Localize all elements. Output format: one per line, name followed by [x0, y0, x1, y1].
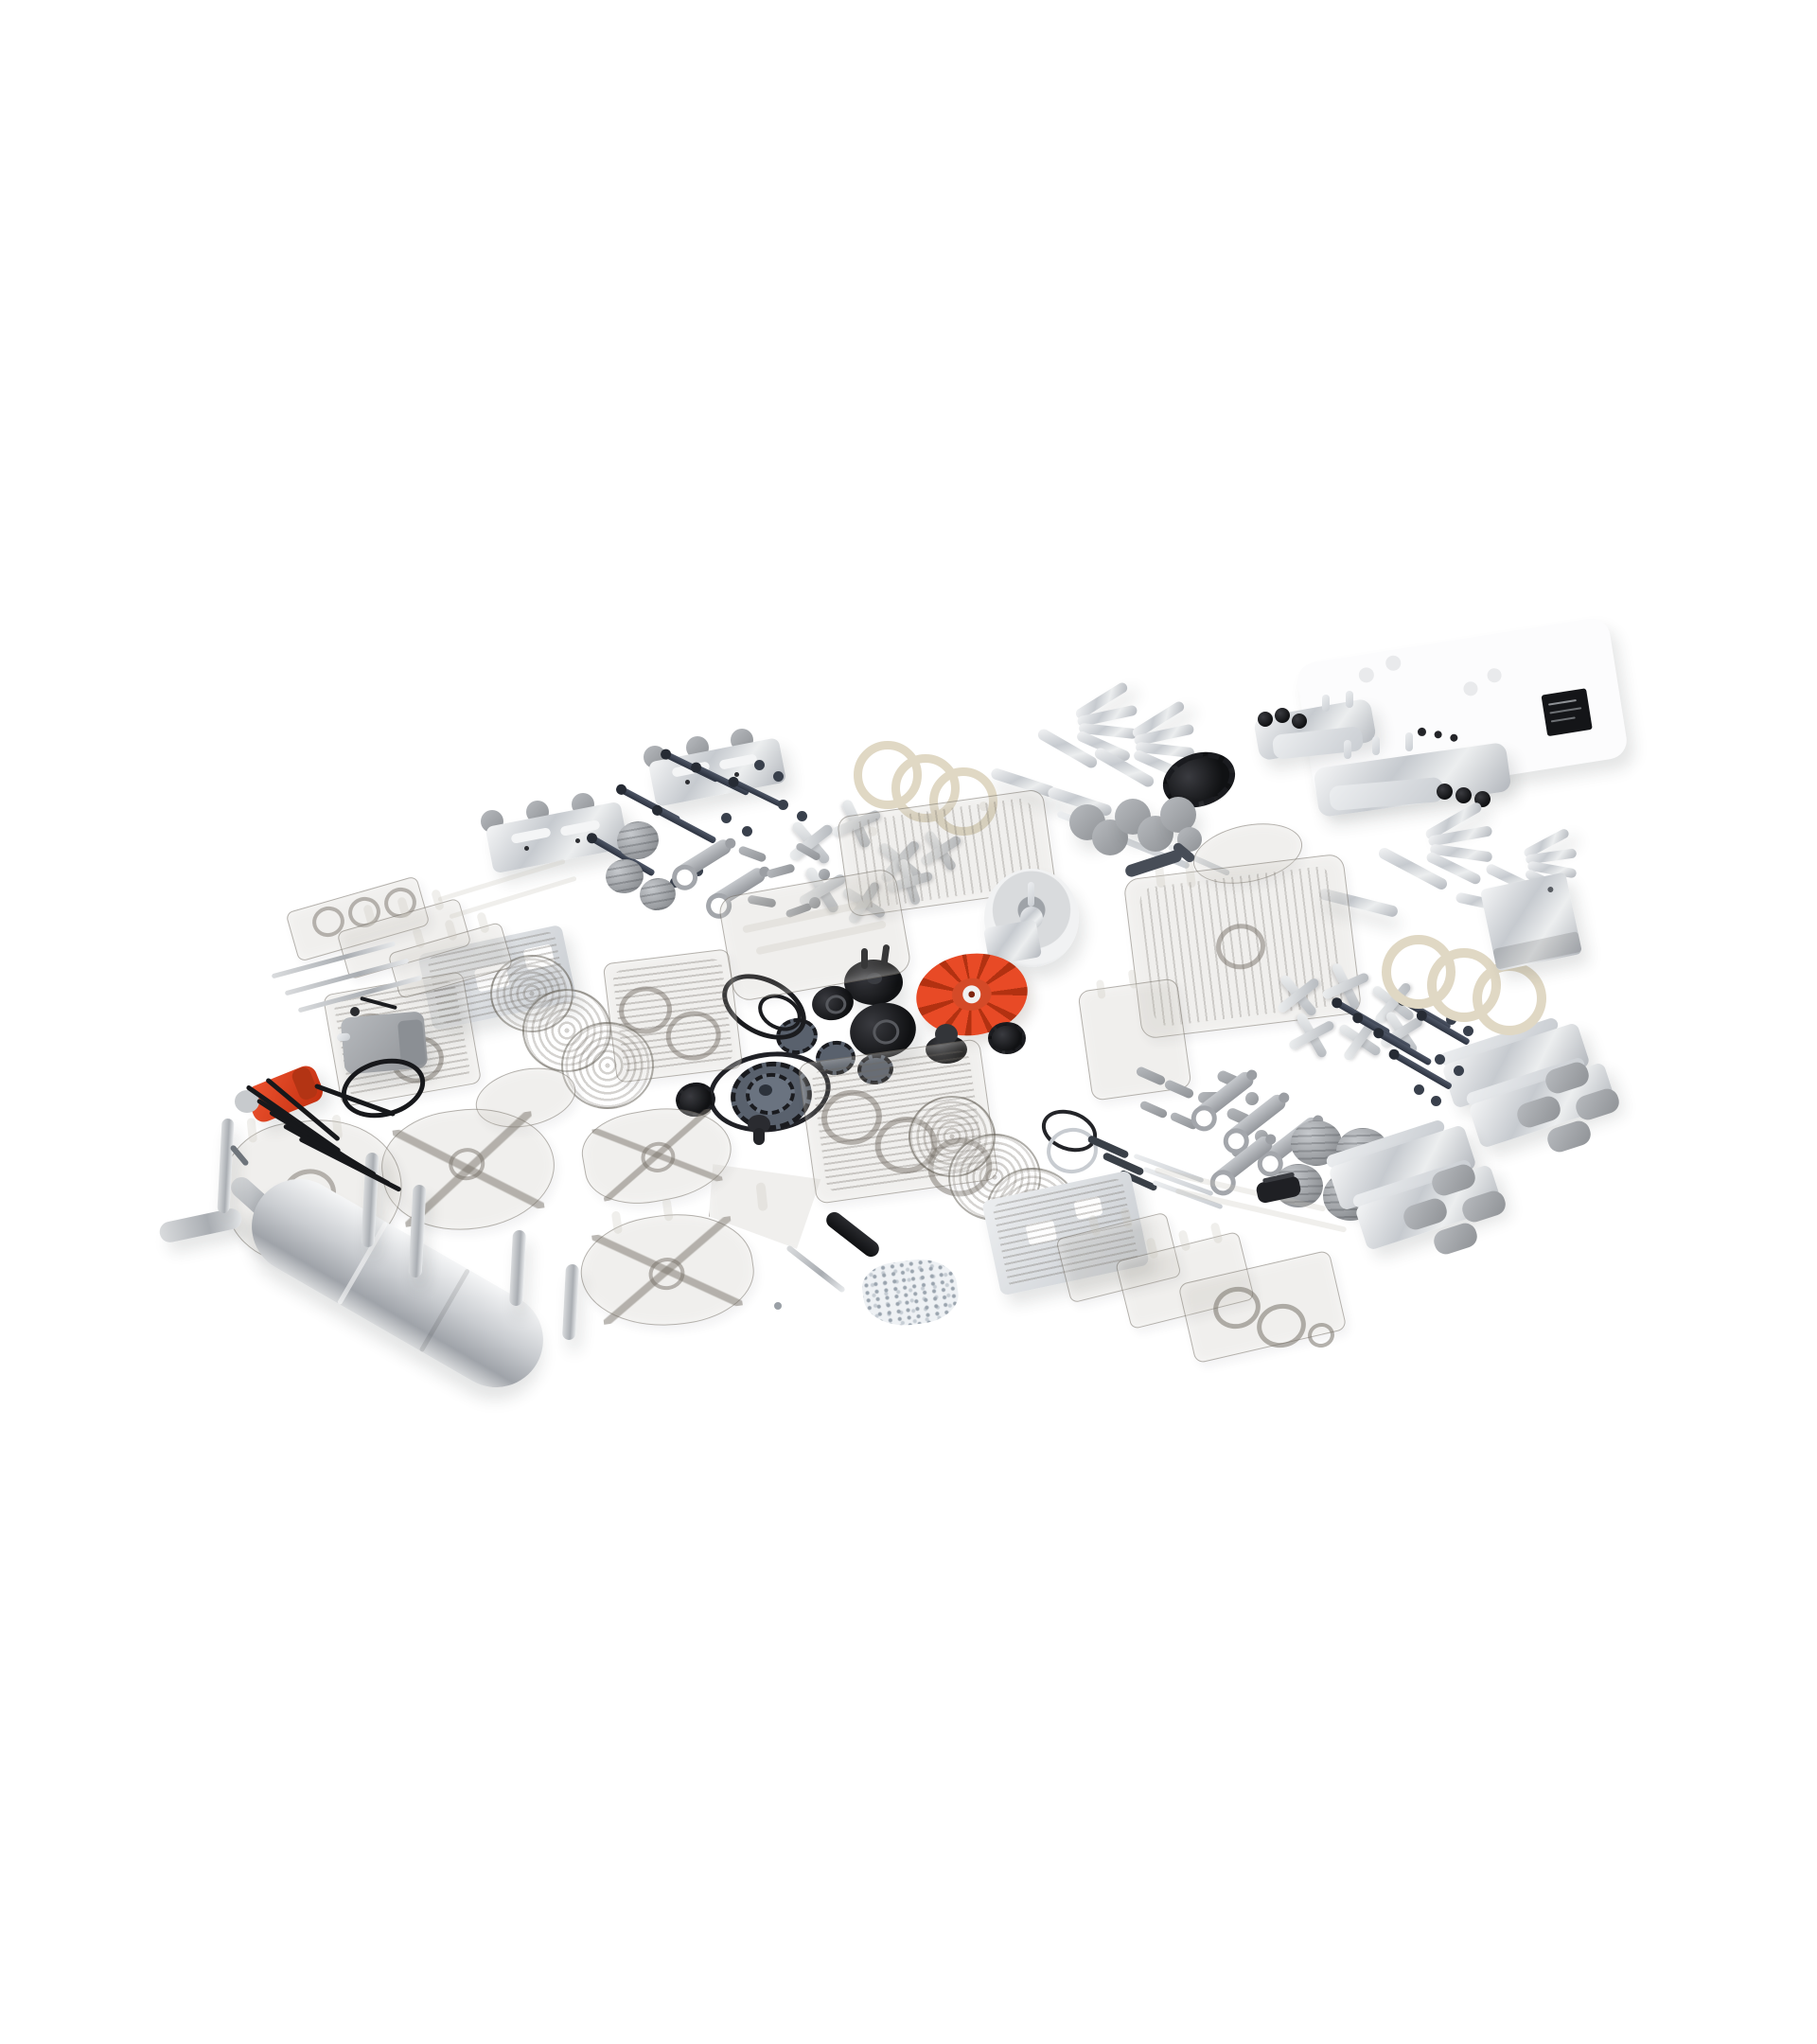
cover-peg	[1358, 666, 1375, 683]
hub-black-small	[746, 1115, 774, 1149]
case-stud	[979, 801, 989, 811]
cover-vent-dot	[1450, 733, 1458, 742]
muffler-seam	[419, 1268, 470, 1352]
cover-peg	[1462, 680, 1478, 696]
spark-plug-wires	[227, 1060, 445, 1183]
screwdriver-shaft	[785, 1244, 846, 1294]
intake-trumpet	[1275, 708, 1290, 723]
cover-vent-dot	[1434, 731, 1442, 739]
wire-clip	[229, 1144, 249, 1167]
gasket-ring	[1473, 961, 1546, 1035]
strip-stud	[362, 904, 377, 926]
head-port	[663, 1008, 724, 1064]
bolt-head	[1414, 1084, 1424, 1095]
case-bearing	[1213, 921, 1267, 972]
bolt-head	[742, 826, 752, 837]
housing-stud	[1028, 882, 1034, 907]
bolt-head	[773, 771, 784, 782]
silver-rod	[298, 976, 423, 1013]
manifold-stud	[1322, 695, 1330, 712]
bolt-head	[1454, 1066, 1464, 1076]
cover-peg	[1487, 667, 1503, 683]
machine-screw	[732, 779, 783, 807]
pulley-groove	[871, 1017, 901, 1046]
machine-screw	[655, 807, 716, 844]
lifter	[737, 845, 767, 863]
bolt-head	[1463, 1026, 1473, 1036]
bracket-stud	[755, 1182, 767, 1211]
chain-tensioner-rail	[1124, 848, 1200, 890]
rocker-shaft-assembly-b	[1320, 1136, 1505, 1259]
cover-stud	[611, 1210, 623, 1234]
manifold-stud	[1372, 736, 1380, 755]
lifter	[1135, 1066, 1166, 1086]
muffler-inlet-pipe	[158, 1207, 244, 1244]
cover-hub	[639, 1139, 678, 1175]
gear-small-black-right	[988, 1022, 1026, 1054]
valve-cover-plate-circles	[1185, 1255, 1346, 1361]
bracket-screw-dot	[524, 846, 529, 851]
label-line	[1548, 699, 1577, 706]
cover-hub	[646, 1256, 686, 1293]
label-line	[1549, 707, 1581, 714]
cover-stud	[1096, 979, 1106, 999]
bolt-head	[721, 813, 732, 823]
cover-vent-dot	[1417, 727, 1426, 736]
manifold-stud	[1346, 691, 1353, 708]
intake-trumpet	[1258, 712, 1273, 727]
machine-screw	[695, 765, 750, 796]
bolt-head	[1435, 1054, 1445, 1065]
plate-hole	[1025, 1219, 1057, 1245]
cover-stud	[662, 1198, 673, 1222]
wire-coil-loop	[335, 1049, 432, 1126]
lifter	[1138, 1100, 1168, 1119]
silver-rods	[270, 950, 412, 1012]
manifold-stud	[1344, 740, 1351, 759]
clear-rod	[449, 876, 576, 920]
screwdriver-handle	[823, 1208, 882, 1260]
case-stud	[923, 813, 933, 823]
engine-kit-product-photo	[0, 0, 1817, 2044]
cover-spec-label	[1541, 688, 1592, 736]
intake-trumpet	[1437, 784, 1453, 800]
intake-manifold-b	[1315, 746, 1519, 817]
rail-bar	[1124, 849, 1184, 879]
bolt-head	[754, 760, 765, 770]
hub-stem	[753, 1128, 765, 1145]
control-box-silver	[1480, 872, 1582, 971]
clear-rods	[435, 871, 577, 946]
bolt-head	[1431, 1096, 1441, 1106]
screwdriver-tip	[774, 1302, 782, 1310]
silver-rod	[285, 959, 410, 996]
manifold-stud	[1405, 732, 1413, 751]
stack-hub	[759, 1084, 772, 1096]
intake-trumpet	[1292, 714, 1307, 729]
black-cap	[1257, 1175, 1306, 1204]
pulley-groove	[824, 994, 848, 1016]
cover-peg	[1385, 655, 1402, 672]
case-stud	[867, 826, 877, 837]
lifter	[795, 842, 821, 862]
intake-trumpet	[1455, 787, 1472, 803]
box-screw-dot	[1547, 886, 1554, 892]
label-line	[1551, 716, 1576, 722]
cylinder-barrel	[561, 1022, 654, 1109]
lifter	[766, 863, 795, 878]
